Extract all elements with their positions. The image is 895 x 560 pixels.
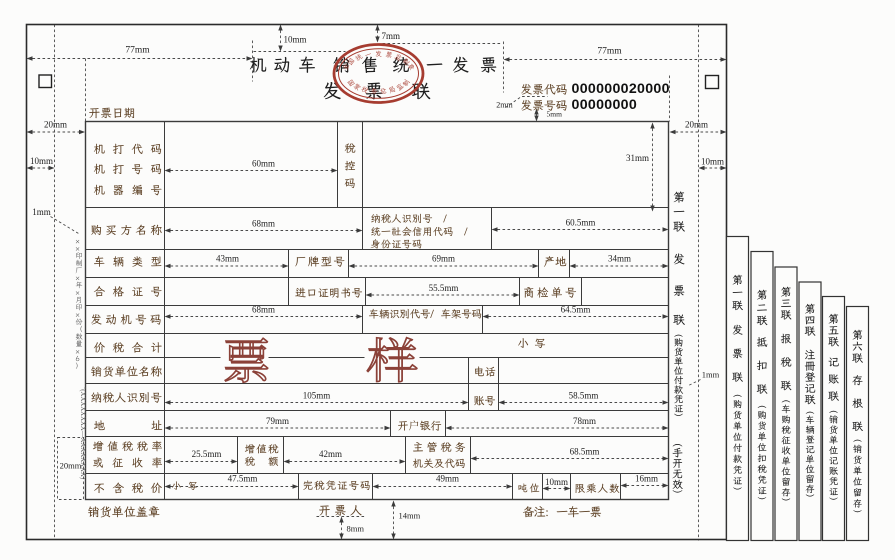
svg-text:20mm: 20mm bbox=[685, 120, 708, 130]
svg-text:68mm: 68mm bbox=[252, 305, 275, 315]
svg-text:1mm: 1mm bbox=[32, 207, 51, 217]
svg-text:8mm: 8mm bbox=[347, 524, 365, 534]
svg-text:25.5mm: 25.5mm bbox=[192, 449, 222, 459]
svg-text:43mm: 43mm bbox=[216, 254, 239, 264]
svg-text:10mm: 10mm bbox=[284, 35, 307, 45]
svg-text:60.5mm: 60.5mm bbox=[566, 218, 596, 228]
svg-text:78mm: 78mm bbox=[573, 416, 596, 426]
svg-text:7mm: 7mm bbox=[382, 31, 401, 41]
svg-text:69mm: 69mm bbox=[432, 254, 455, 264]
svg-text:77mm: 77mm bbox=[597, 47, 622, 57]
svg-text:000000020000: 000000020000 bbox=[572, 81, 670, 97]
svg-text:5mm: 5mm bbox=[547, 110, 563, 119]
svg-text:58.5mm: 58.5mm bbox=[569, 391, 599, 401]
svg-text:55.5mm: 55.5mm bbox=[429, 283, 459, 293]
svg-text:47.5mm: 47.5mm bbox=[228, 474, 258, 484]
svg-text:31mm: 31mm bbox=[626, 153, 649, 163]
svg-text:10mm: 10mm bbox=[701, 157, 724, 167]
svg-text:1mm: 1mm bbox=[702, 370, 720, 380]
svg-text:20mm: 20mm bbox=[60, 461, 82, 471]
svg-text:64.5mm: 64.5mm bbox=[561, 305, 591, 315]
svg-text:16mm: 16mm bbox=[635, 474, 658, 484]
svg-text:105mm: 105mm bbox=[303, 391, 331, 401]
svg-text:77mm: 77mm bbox=[125, 46, 150, 56]
svg-text:79mm: 79mm bbox=[266, 416, 289, 426]
svg-text:42mm: 42mm bbox=[319, 449, 342, 459]
svg-text:10mm: 10mm bbox=[545, 477, 568, 487]
svg-text:14mm: 14mm bbox=[399, 511, 421, 521]
svg-text:34mm: 34mm bbox=[608, 254, 631, 264]
svg-text:68mm: 68mm bbox=[252, 219, 275, 229]
svg-text:20mm: 20mm bbox=[44, 120, 67, 130]
svg-text:49mm: 49mm bbox=[436, 474, 459, 484]
svg-text:68.5mm: 68.5mm bbox=[570, 447, 600, 457]
svg-text:60mm: 60mm bbox=[252, 159, 275, 169]
svg-text:00000000: 00000000 bbox=[572, 97, 638, 113]
svg-text:10mm: 10mm bbox=[30, 156, 53, 166]
svg-text:"(XXXXXXXX—XXXXXXXX): "(XXXXXXXX—XXXXXXXX) bbox=[79, 387, 86, 480]
svg-text:2mm: 2mm bbox=[496, 101, 513, 110]
